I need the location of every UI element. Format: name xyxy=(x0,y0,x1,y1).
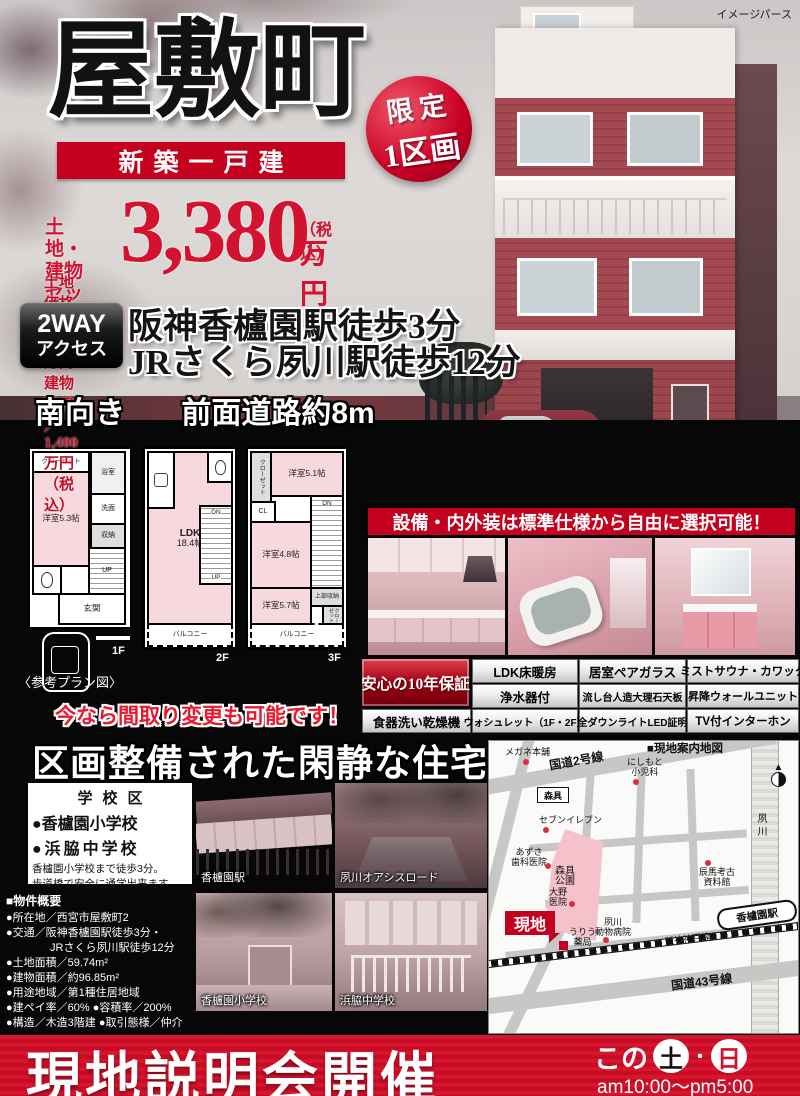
equip-cell-r3c1: ウォシュレット（1F・2F） xyxy=(472,709,578,733)
azusa-label: あずさ 歯科医院 xyxy=(511,847,547,867)
equip-cell-r2c3: 昇降ウォールユニット xyxy=(687,684,799,708)
vanity-photo xyxy=(655,538,795,655)
equip-cell-r1c3: ミストサウナ・カワック xyxy=(687,659,799,683)
footer-banner: 現地説明会開催 この 土 ・ 日 am10:00～pm5:00 xyxy=(0,1035,800,1096)
elementary-gate xyxy=(248,945,292,989)
elementary-photo: 香櫨園小学校 xyxy=(196,893,332,1011)
bathroom-photo xyxy=(508,538,652,655)
junior-gate-bars xyxy=(351,955,471,992)
brick-band-3f xyxy=(495,98,735,176)
property-overview: ■物件概要 ●所在地／西宮市屋敷町2 ●交通／阪神香櫨園駅徒歩3分・ JRさくら… xyxy=(6,892,192,1031)
station-oval-label: 香櫨園駅 xyxy=(735,905,779,926)
junior-building xyxy=(345,901,477,945)
equip-cell-r2c1: 浄水器付 xyxy=(472,684,578,708)
kitchen-base xyxy=(368,618,505,642)
kitchen-photo xyxy=(368,538,505,655)
elementary-caption: 香櫨園小学校 xyxy=(201,992,267,1008)
school-item-elementary: ●香櫨園小学校 xyxy=(32,810,192,834)
plan-1f-label: 1F xyxy=(112,645,125,657)
subtitle-banner: 新築一戸建 xyxy=(57,142,345,179)
overview-item: ●建ペイ率／60% ●容積率／200% xyxy=(6,1001,192,1016)
nishimoto-dot xyxy=(633,779,639,785)
kitchen-hood xyxy=(463,556,497,582)
school-district-box: 学校区 ●香櫨園小学校 ●浜脇中学校 香櫨園小学校まで徒歩3分。 歩道橋で安全に… xyxy=(28,783,192,884)
station-caption: 香櫨園駅 xyxy=(201,869,245,885)
flyer-page: イメージパース 屋敷町 新築一戸建 限定 1区画 土地・建物 セット価格 3,3… xyxy=(0,0,800,1096)
equip-cell-r2c2: 流し台人造大理石天板 xyxy=(579,684,686,708)
ohno-label-1: 大野 xyxy=(549,887,567,897)
area-map: 夙川 森具 公園 阪神神戸線 香櫨園駅 国道43号線 国道2号線 現地 xyxy=(488,740,799,1034)
uriu-label-2: 薬局 xyxy=(569,937,596,947)
animal-label: 夙川 動物病院 xyxy=(595,917,631,937)
footer-kono: この xyxy=(594,1037,648,1076)
kitchen-counter xyxy=(147,451,175,509)
access-badge-line1: 2WAY xyxy=(37,311,106,338)
footer-sun-circle: 日 xyxy=(711,1039,747,1073)
plan-1f-step xyxy=(96,636,130,640)
equipment-banner: 設備・内外装は標準仕様から自由に選択可能！ xyxy=(368,508,795,535)
overview-title: ■物件概要 xyxy=(6,892,192,909)
overview-item: ●所在地／西宮市屋敷町2 xyxy=(6,911,192,926)
equip-cell-r1c2: 居室ペアガラス xyxy=(579,659,686,683)
overview-item: ●建物面積／約96.85m² xyxy=(6,971,192,986)
equip-cell-r3c0: 食器洗い乾燥機 xyxy=(362,709,471,733)
price-amount: 3,380 xyxy=(120,180,308,283)
nishimoto-label-2: 小児科 xyxy=(627,767,663,777)
closet-3f-bottom: クローゼット xyxy=(322,605,344,625)
stairs-up-label: UP xyxy=(211,574,220,581)
station-photo: 香櫨園駅 xyxy=(196,783,332,888)
window-2f-right xyxy=(629,258,703,316)
stairs-2f: DN UP xyxy=(199,505,233,585)
animal-label-1: 夙川 xyxy=(595,917,631,927)
plan-car-roof xyxy=(51,646,79,674)
school-note2: 歩道橋で安全に通学出来ます。 xyxy=(32,876,192,891)
uriu-label: うりう 薬局 xyxy=(569,927,596,947)
ohno-label: 大野 医院 xyxy=(549,887,567,907)
animal-dot xyxy=(603,937,609,943)
overview-item: ●土地面積／59.74m² xyxy=(6,956,192,971)
nishimoto-label: にしもと 小児科 xyxy=(627,757,663,777)
equip-cell-r3c2: 全ダウンライトLED証明 xyxy=(579,709,686,733)
brick-band-2f xyxy=(495,238,735,330)
warranty-box: 安心の10年保証 xyxy=(362,659,469,706)
access-badge-line2: アクセス xyxy=(36,338,107,360)
plan-caption: 〈参考プラン図〉 xyxy=(18,672,122,691)
equipment-banner-text: 設備・内外装は標準仕様から自由に選択可能！ xyxy=(393,509,771,535)
ohno-label-2: 医院 xyxy=(549,897,567,907)
site-marker: 現地 xyxy=(505,911,555,935)
stairs-dn-label: DN xyxy=(211,509,220,516)
oasis-caption: 夙川オアシスロード xyxy=(340,869,439,885)
park-label: 森具 公園 xyxy=(555,867,575,887)
bath-counter xyxy=(610,558,646,628)
room-yoshitsu48: 洋室4.8帖 xyxy=(250,521,312,589)
map-title: ■現地案内地図 xyxy=(647,744,723,754)
tatsuuma-label-2: 資料館 xyxy=(699,877,735,887)
room-cl: CL xyxy=(250,501,276,523)
badge-line2: 1区画 xyxy=(380,121,463,176)
river-label: 夙川 xyxy=(755,813,765,839)
compass-needle: ▲ xyxy=(771,763,786,772)
nishimoto-label-1: にしもと xyxy=(627,757,663,767)
tatsuuma-label: 辰馬考古 資料館 xyxy=(699,867,735,887)
site-marker-label: 現地 xyxy=(514,911,546,935)
tatsuuma-dot xyxy=(705,860,711,866)
footer-sun: 日 xyxy=(717,1039,741,1074)
oasis-photo: 夙川オアシスロード xyxy=(335,783,487,888)
equip-cell-r1c1: LDK床暖房 xyxy=(472,659,578,683)
morigu-box: 森具 xyxy=(537,787,569,803)
balcony-band xyxy=(495,176,735,245)
footer-sat: 土 xyxy=(659,1039,683,1074)
oasis-trees xyxy=(335,783,487,823)
plan-2f-label: 2F xyxy=(216,652,229,664)
overview-item: JRさくら夙川駅徒歩12分 xyxy=(6,941,192,956)
school-title: 学校区 xyxy=(28,787,202,808)
compass-icon: ▲ xyxy=(771,763,786,787)
megane-label: メガネ本舗 xyxy=(505,747,550,757)
facing-line: 南向き 前面道路約8m xyxy=(35,388,375,432)
azusa-dot xyxy=(545,863,551,869)
school-note1: 香櫨園小学校まで徒歩3分。 xyxy=(32,861,192,876)
tatsuuma-label-1: 辰馬考古 xyxy=(699,867,735,877)
kitchen-counter xyxy=(368,610,505,618)
window-3f-right xyxy=(627,112,703,166)
footer-date-row: この 土 ・ 日 xyxy=(594,1038,747,1074)
toilet-1f xyxy=(32,565,62,595)
street-v3 xyxy=(686,769,699,921)
balcony-2f: バルコニー xyxy=(147,623,233,647)
facing-south: 南向き xyxy=(35,397,125,430)
elementary-trees xyxy=(196,893,332,937)
footer-headline: 現地説明会開催 xyxy=(26,1034,439,1096)
room-storage: 収納 xyxy=(90,523,126,549)
compass-circle xyxy=(771,772,786,787)
building-facade xyxy=(495,28,735,466)
junior-photo: 浜脇中学校 xyxy=(335,893,487,1011)
access-line2: JRさくら夙川駅徒歩12分 xyxy=(128,334,521,385)
toilet-bowl-2f xyxy=(215,460,226,475)
floorplan-2f: LDK 18.4帖 DN UP バルコニー xyxy=(143,447,237,649)
site-square xyxy=(559,941,568,950)
room-entrance: 玄関 xyxy=(58,593,126,625)
floorplan-3f: クローゼット 洋室5.1帖 CL 洋室4.8帖 DN 上部収納 洋室5.7帖 ク… xyxy=(246,447,348,649)
window-2f-left xyxy=(517,258,597,316)
balcony-rail-lines xyxy=(503,198,727,234)
stairs-1f: UP xyxy=(88,547,126,595)
page-title: 屋敷町 xyxy=(48,14,366,131)
seven-dot xyxy=(543,827,549,833)
balcony-3f: バルコニー xyxy=(250,623,344,647)
vanity-mirror xyxy=(691,548,751,596)
overview-item: ●構造／木造3階建 ●取引態様／仲介 xyxy=(6,1016,192,1031)
azusa-label-1: あずさ xyxy=(511,847,547,857)
building-side-wall xyxy=(735,64,777,466)
perspective-note: イメージパース xyxy=(716,6,792,22)
footer-sat-circle: 土 xyxy=(653,1039,689,1073)
plan-change-note: 今なら間取り変更も可能です！ xyxy=(55,700,349,730)
warranty-text: 安心の10年保証 xyxy=(361,672,470,694)
upper-storage: 上部収納 xyxy=(310,587,344,607)
room-bath: 浴室 xyxy=(90,451,126,495)
facing-road: 前面道路約8m xyxy=(181,397,374,430)
footer-time: am10:00～pm5:00 xyxy=(597,1072,753,1096)
footer-dot: ・ xyxy=(691,1043,709,1069)
stove-icon xyxy=(154,473,168,487)
overview-item: ●用途地域／第1種住居地域 xyxy=(6,986,192,1001)
access-badge: 2WAY アクセス xyxy=(20,302,123,368)
school-item-junior: ●浜脇中学校 xyxy=(32,835,192,859)
subtitle-text: 新築一戸建 xyxy=(118,143,293,179)
overview-item: ●交通／阪神香櫨園駅徒歩3分・ xyxy=(6,926,192,941)
seven-label: セブンイレブン xyxy=(539,815,602,825)
vanity-cabinet xyxy=(683,612,757,648)
animal-label-2: 動物病院 xyxy=(595,927,631,937)
vanity-counter xyxy=(683,604,757,612)
room-yoshitsu51: 洋室5.1帖 xyxy=(270,451,344,497)
room-wash: 洗面 xyxy=(90,493,126,525)
azusa-label-2: 歯科医院 xyxy=(511,857,547,867)
town-headline: 区画整備された閑静な住宅街！ xyxy=(32,733,564,787)
room-yoshitsu57: 洋室5.7帖 xyxy=(250,587,312,625)
slab-band xyxy=(495,330,735,360)
morigu-label: 森具 xyxy=(544,789,562,802)
window-3f-left xyxy=(517,112,593,166)
plan-3f-label: 3F xyxy=(328,652,341,664)
park-label-2: 公園 xyxy=(555,877,575,887)
uriu-label-1: うりう xyxy=(569,927,596,937)
toilet-bowl xyxy=(41,572,53,588)
toilet-2f xyxy=(207,451,233,483)
closet-3f-top: クローゼット xyxy=(250,451,272,503)
ohno-dot xyxy=(569,901,575,907)
equip-cell-r3c3: TV付インターホン xyxy=(687,709,799,733)
stairs-3f: DN xyxy=(310,495,344,592)
main-street-upper xyxy=(488,740,536,930)
ldk-label: LDK xyxy=(180,528,201,539)
junior-caption: 浜脇中学校 xyxy=(340,992,395,1008)
megane-dot xyxy=(523,759,529,765)
